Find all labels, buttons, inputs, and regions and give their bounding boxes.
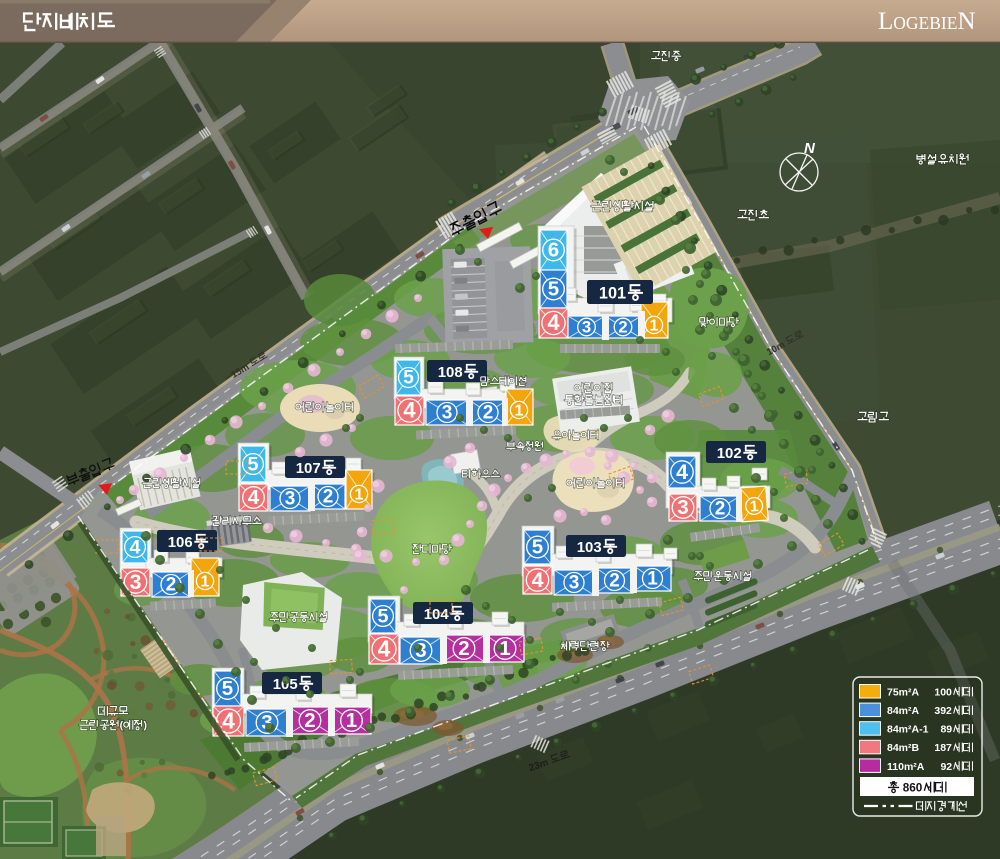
svg-text:92: 92 [940,761,952,773]
svg-text:LOGEBIEN: LOGEBIEN [878,8,976,35]
svg-text:107: 107 [296,460,321,477]
svg-text:2: 2 [166,575,177,596]
svg-text:4: 4 [130,536,141,558]
svg-text:4: 4 [532,568,544,592]
svg-text:104: 104 [424,606,450,623]
svg-text:4: 4 [676,460,688,484]
svg-text:5: 5 [548,278,559,301]
svg-text:2: 2 [483,403,494,424]
svg-text:1: 1 [749,498,759,516]
svg-text:N: N [804,140,816,157]
svg-text:3: 3 [677,496,688,519]
svg-text:4: 4 [378,635,391,661]
svg-text:): ) [144,720,148,732]
svg-text:4: 4 [248,486,260,509]
svg-text:1: 1 [201,573,210,590]
svg-text:106: 106 [168,534,193,551]
svg-text:5: 5 [248,453,259,475]
svg-text:100: 100 [934,686,952,698]
svg-text:1: 1 [346,709,357,732]
svg-text:3: 3 [442,403,453,424]
svg-text:2: 2 [715,499,726,520]
svg-text:2: 2 [323,487,334,508]
svg-text:2: 2 [458,637,469,660]
svg-text:5: 5 [222,677,233,700]
svg-text:84m²A: 84m²A [887,705,920,717]
svg-text:5: 5 [378,605,389,627]
svg-text:75m²A: 75m²A [887,686,920,698]
svg-text:2: 2 [618,317,627,336]
svg-text:4: 4 [222,707,235,733]
svg-text:1: 1 [650,317,659,334]
svg-text:102: 102 [717,445,742,462]
svg-text:89: 89 [940,724,952,736]
svg-text:2: 2 [609,571,620,592]
svg-text:5: 5 [532,536,543,559]
svg-text:6: 6 [548,239,559,262]
svg-text:84m²A-1: 84m²A-1 [887,724,929,736]
svg-text:392: 392 [934,705,952,717]
svg-text:84m²B: 84m²B [887,742,920,754]
svg-text:2: 2 [304,709,315,732]
svg-text:1: 1 [515,402,524,419]
svg-text:3: 3 [285,489,296,510]
svg-text:3: 3 [582,317,591,336]
svg-text:(: ( [120,720,124,732]
svg-text:860: 860 [903,781,923,794]
svg-text:1: 1 [355,486,364,503]
svg-text:1: 1 [647,569,658,590]
svg-text:110m²A: 110m²A [887,761,925,773]
svg-text:101: 101 [599,284,626,302]
svg-text:108: 108 [438,364,463,381]
svg-text:4: 4 [547,310,560,335]
svg-text:3: 3 [569,573,580,594]
svg-text:5: 5 [403,368,414,389]
svg-text:3: 3 [130,570,142,594]
svg-text:187: 187 [934,742,952,754]
svg-text:103: 103 [577,539,602,556]
svg-text:4: 4 [403,398,416,423]
